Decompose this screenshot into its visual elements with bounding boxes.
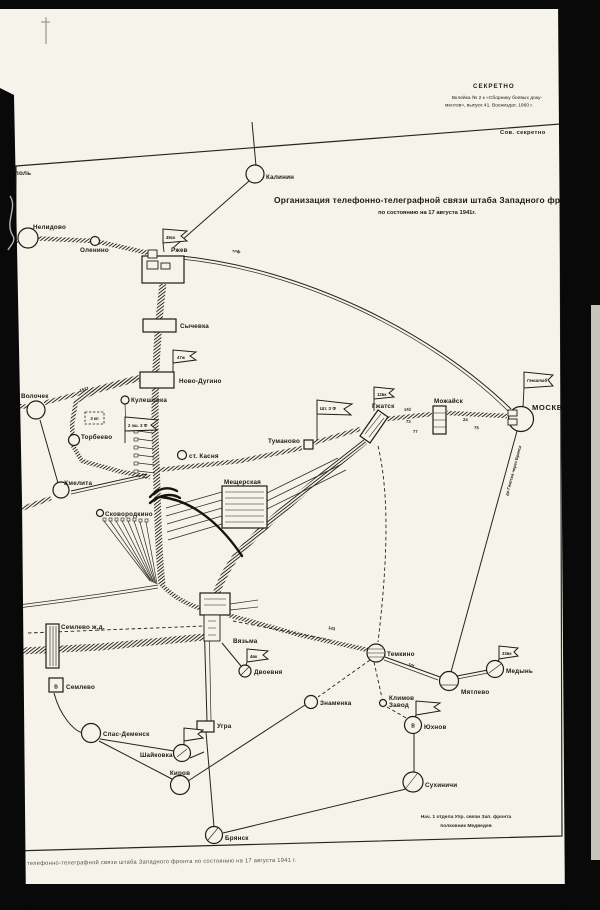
svg-text:12вк: 12вк	[377, 392, 387, 397]
svg-text:Сухиничи: Сухиничи	[425, 782, 457, 789]
svg-text:Спас-Деменск: Спас-Деменск	[103, 731, 150, 738]
svg-text:49ск: 49ск	[166, 235, 176, 240]
svg-text:Хмелита: Хмелита	[64, 480, 93, 487]
svg-text:Мятлево: Мятлево	[461, 689, 489, 696]
scanned-page: СЕКРЕТНО Вклейка № 2 к «Сборнику боевых …	[0, 0, 600, 910]
svg-text:Нелидово: Нелидово	[33, 224, 66, 231]
imprint-line2: ментов», выпуск 41. Воениздат, 1960 г.	[445, 103, 533, 109]
inner-secrecy-stamp: Сов. секретно	[500, 130, 546, 136]
svg-text:Ново-Дугино: Ново-Дугино	[179, 378, 222, 385]
svg-text:В: В	[54, 685, 58, 691]
svg-text:Мещерская: Мещерская	[224, 479, 261, 486]
svg-text:тлф: тлф	[232, 248, 241, 254]
paper-sheet	[0, 8, 574, 886]
svg-text:Знаменка: Знаменка	[320, 700, 352, 707]
svg-text:143: 143	[404, 407, 412, 412]
svg-text:Двоевня: Двоевня	[254, 669, 282, 676]
kalinin-circle	[246, 165, 264, 183]
svg-text:Оленино: Оленино	[80, 247, 109, 254]
signature-line1: Нач. 1 отдела Упр. связи Зап. фронта	[421, 813, 512, 820]
svg-text:Сковородкино: Сковородкино	[105, 511, 153, 518]
node-kirov: Киров	[170, 770, 190, 795]
svg-text:Шт. З Ф: Шт. З Ф	[320, 406, 336, 411]
svg-text:Торбеево: Торбеево	[81, 433, 112, 441]
svg-text:ст. Касня: ст. Касня	[189, 453, 219, 460]
svg-text:Генштаб: Генштаб	[527, 378, 547, 383]
svg-text:В: В	[411, 724, 415, 730]
map-canvas: СЕКРЕТНО Вклейка № 2 к «Сборнику боевых …	[0, 0, 600, 910]
map-title-line1: Организация телефонно-телеграфной связи …	[274, 195, 580, 205]
svg-text:Ржев: Ржев	[171, 247, 188, 254]
svg-text:Гжатск: Гжатск	[372, 403, 395, 410]
svg-text:3 кп: 3 кп	[90, 416, 99, 421]
unit-box-3kp: 3 кп	[85, 412, 104, 424]
svg-text:Завод: Завод	[389, 702, 409, 709]
svg-text:Киров: Киров	[170, 770, 190, 777]
svg-text:Сычевка: Сычевка	[180, 323, 209, 330]
imprint-line1: Вклейка № 2 к «Сборнику боевых доку-	[452, 94, 543, 101]
svg-text:Туманово: Туманово	[268, 438, 300, 445]
mozhaisk-moskva-cable	[447, 413, 507, 416]
svg-text:Климов: Климов	[389, 695, 414, 702]
signature-line2: полковник Медведев	[440, 823, 491, 829]
svg-text:Волочек: Волочек	[21, 393, 49, 400]
classification-stamp: СЕКРЕТНО	[473, 83, 515, 90]
map-title-line2: по состоянию на 17 августа 1941г.	[378, 210, 476, 216]
svg-text:Можайск: Можайск	[434, 397, 464, 405]
node-pol: поль	[15, 170, 31, 177]
svg-text:Медынь: Медынь	[506, 668, 533, 675]
svg-text:Кулешовка: Кулешовка	[131, 397, 167, 404]
svg-text:Семлево ж.д.: Семлево ж.д.	[61, 624, 105, 631]
svg-text:Юхнов: Юхнов	[424, 724, 447, 731]
node-skovorodkino: Сковородкино	[97, 510, 153, 519]
svg-text:33вк: 33вк	[502, 651, 512, 656]
svg-text:Вязьма: Вязьма	[233, 638, 258, 645]
svg-text:2 эш. З Ф: 2 эш. З Ф	[128, 423, 148, 428]
svg-text:4вк: 4вк	[250, 654, 258, 659]
svg-text:Темкино: Темкино	[387, 651, 415, 658]
svg-text:24: 24	[463, 417, 469, 422]
node-meshcherskaya: Мещерская	[222, 479, 267, 528]
svg-text:75: 75	[474, 425, 480, 430]
svg-text:Угра: Угра	[217, 723, 232, 730]
kalinin-label: Калинин	[266, 174, 294, 181]
svg-text:Семлево: Семлево	[66, 684, 95, 691]
adjacent-page-edge	[591, 305, 600, 860]
node-pol-label: поль	[15, 170, 31, 177]
svg-text:Брянск: Брянск	[225, 835, 249, 842]
svg-text:Шайковка: Шайковка	[140, 751, 173, 759]
svg-text:47ж: 47ж	[177, 355, 186, 360]
